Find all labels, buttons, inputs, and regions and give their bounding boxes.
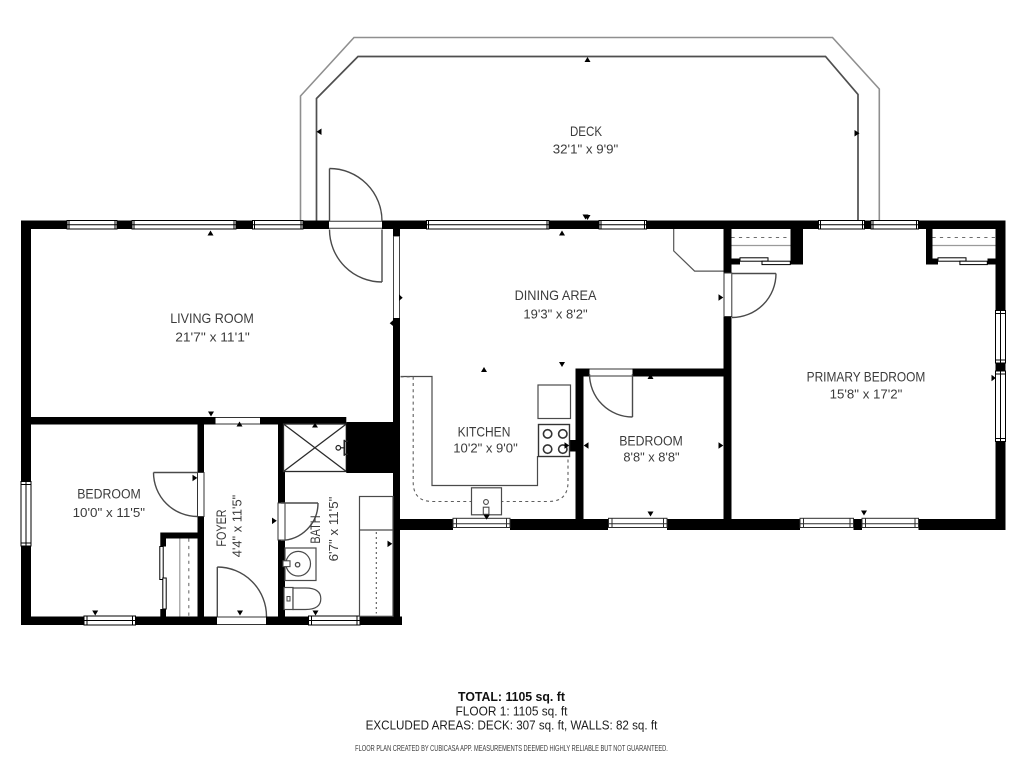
svg-text:6'7" x 11'5": 6'7" x 11'5" — [326, 496, 341, 561]
svg-text:10'0" x 11'5": 10'0" x 11'5" — [73, 505, 146, 520]
svg-text:KITCHEN: KITCHEN — [458, 424, 511, 440]
svg-text:BEDROOM: BEDROOM — [619, 433, 683, 449]
svg-text:DINING AREA: DINING AREA — [515, 288, 597, 303]
svg-text:FLOOR PLAN CREATED BY CUBICASA: FLOOR PLAN CREATED BY CUBICASA APP. MEAS… — [355, 745, 668, 753]
svg-text:8'8" x 8'8": 8'8" x 8'8" — [623, 449, 680, 464]
svg-text:EXCLUDED AREAS: DECK: 307 sq.: EXCLUDED AREAS: DECK: 307 sq. ft, WALLS:… — [366, 718, 658, 733]
svg-text:FOYER: FOYER — [214, 509, 229, 546]
svg-text:BATH: BATH — [308, 515, 323, 543]
svg-text:FLOOR 1: 1105 sq. ft: FLOOR 1: 1105 sq. ft — [456, 704, 568, 719]
svg-text:LIVING ROOM: LIVING ROOM — [170, 311, 254, 326]
svg-text:10'2" x 9'0": 10'2" x 9'0" — [453, 441, 518, 456]
svg-text:15'8" x 17'2": 15'8" x 17'2" — [830, 387, 903, 402]
svg-text:32'1" x 9'9": 32'1" x 9'9" — [553, 142, 619, 157]
svg-text:21'7" x 11'1": 21'7" x 11'1" — [175, 330, 250, 345]
svg-text:19'3" x 8'2": 19'3" x 8'2" — [523, 307, 588, 322]
svg-text:BEDROOM: BEDROOM — [77, 486, 141, 502]
svg-text:4'4" x 11'5": 4'4" x 11'5" — [229, 494, 244, 557]
svg-text:DECK: DECK — [570, 124, 603, 139]
svg-text:TOTAL: 1105 sq. ft: TOTAL: 1105 sq. ft — [458, 690, 566, 704]
svg-text:PRIMARY BEDROOM: PRIMARY BEDROOM — [807, 370, 926, 385]
